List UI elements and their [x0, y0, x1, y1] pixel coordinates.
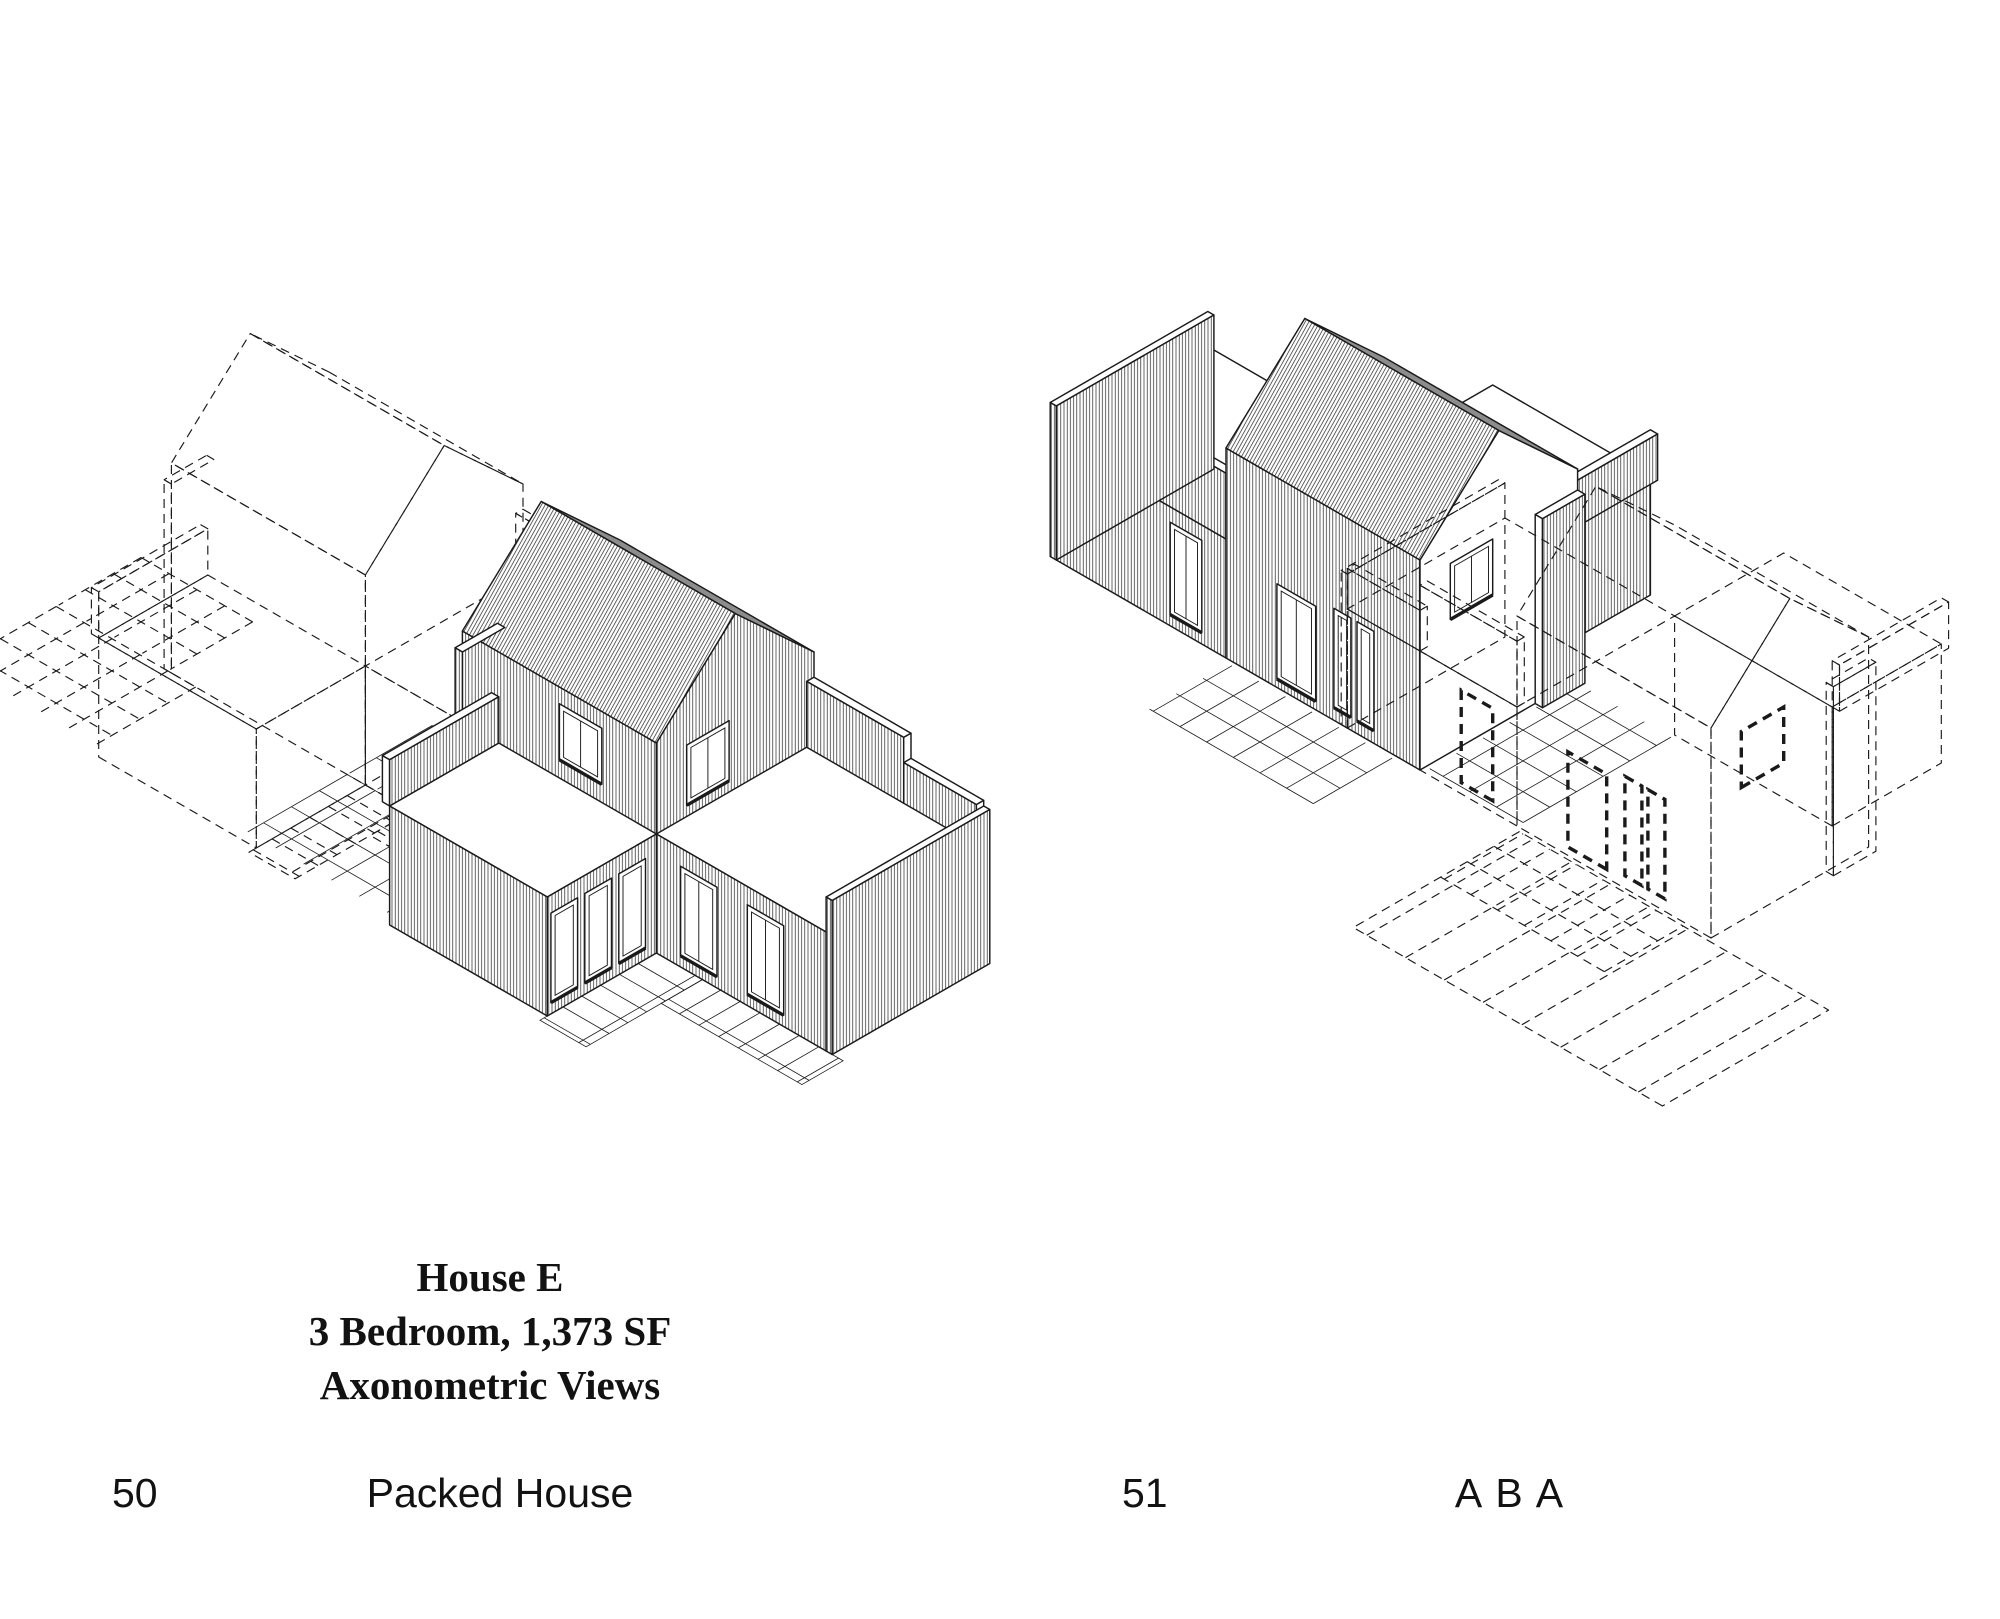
caption-block: House E 3 Bedroom, 1,373 SF Axonometric … [140, 1250, 840, 1412]
caption-house-specs: 3 Bedroom, 1,373 SF [140, 1304, 840, 1358]
page-number-left: 50 [112, 1470, 158, 1517]
caption-house-name: House E [140, 1250, 840, 1304]
book-spread: House E 3 Bedroom, 1,373 SF Axonometric … [0, 0, 2000, 1619]
page-number-right: 51 [1122, 1470, 1168, 1517]
footer-title-left: Packed House [240, 1470, 760, 1517]
caption-view-type: Axonometric Views [140, 1358, 840, 1412]
footer-title-right: A B A [1310, 1470, 1710, 1517]
